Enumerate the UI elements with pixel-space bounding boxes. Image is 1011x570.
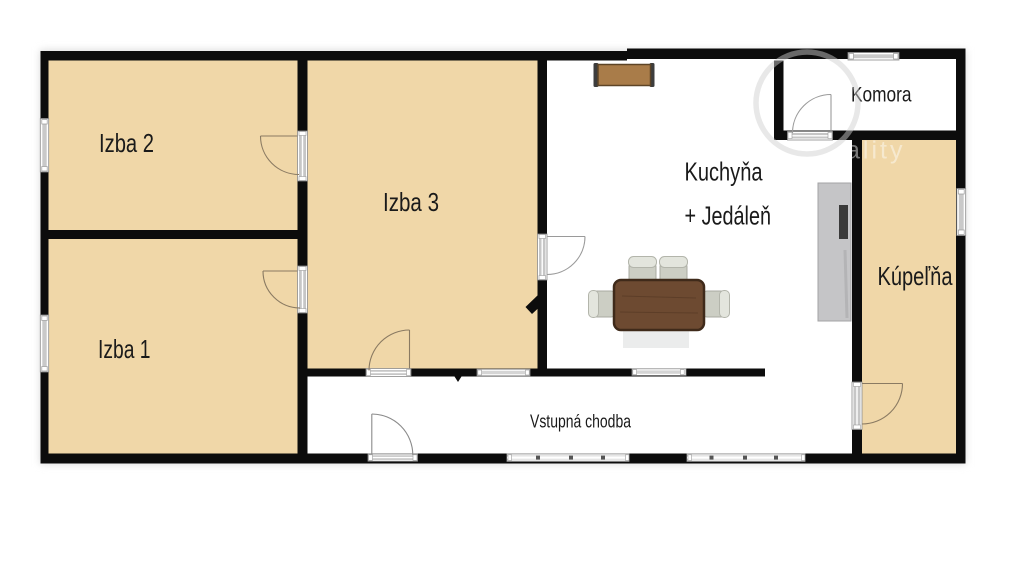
svg-text:Izba 2: Izba 2 [99,128,154,158]
svg-text:Izba 3: Izba 3 [383,187,439,217]
svg-text:ality: ality [846,137,905,165]
svg-text:Izba 1: Izba 1 [98,334,151,364]
svg-text:Vstupná chodba: Vstupná chodba [530,411,632,432]
svg-text:Kuchyňa: Kuchyňa [685,157,763,187]
svg-text:+ Jedáleň: + Jedáleň [685,201,772,231]
svg-text:Kúpeľňa: Kúpeľňa [878,261,953,291]
